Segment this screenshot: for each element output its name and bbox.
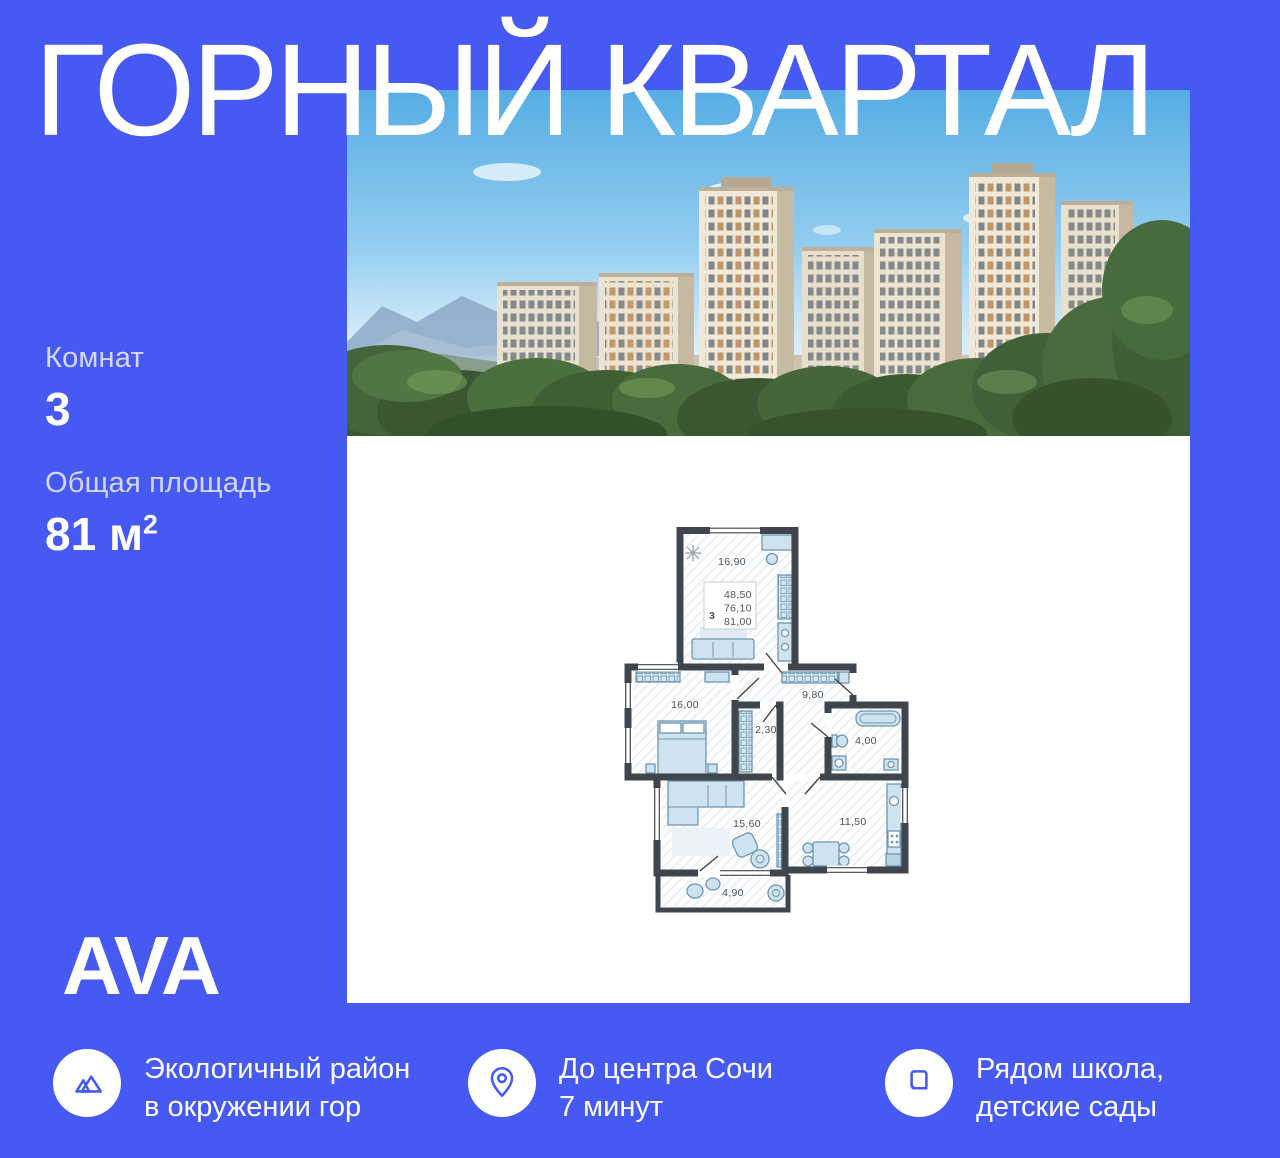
spec-area-number: 81 м xyxy=(45,508,143,560)
plan-summary-area-2: 76,10 xyxy=(724,603,752,615)
feature-ecology-line2: в окружении гор xyxy=(144,1088,410,1126)
spec-area: Общая площадь 81 м2 xyxy=(45,467,272,561)
feature-ecology: Экологичный район в окружении гор xyxy=(53,1049,410,1126)
spec-rooms: Комнат 3 xyxy=(45,342,144,436)
plan-summary-area-1: 48,50 xyxy=(724,589,752,601)
feature-location-line2: 7 минут xyxy=(559,1088,773,1126)
feature-ecology-text: Экологичный район в окружении гор xyxy=(144,1050,410,1126)
plan-summary-rooms: 3 xyxy=(709,610,715,622)
room-label-balcony: 4,90 xyxy=(722,887,744,899)
page-title: ГОРНЫЙ КВАРТАЛ xyxy=(34,24,1152,155)
feature-school-badge xyxy=(885,1049,953,1117)
feature-school-line1: Рядом школа, xyxy=(976,1050,1164,1088)
developer-logo: AVA xyxy=(62,924,219,1007)
feature-location: До центра Сочи 7 минут xyxy=(468,1049,773,1126)
floor-plan-panel: 3 48,50 76,10 81,00 16,90 16,00 2,30 9,8… xyxy=(347,436,1190,1003)
room-label-hallway: 9,80 xyxy=(802,689,824,701)
feature-location-line1: До центра Сочи xyxy=(559,1050,773,1088)
feature-ecology-badge xyxy=(53,1049,121,1117)
room-label-living-kitchen: 16,90 xyxy=(718,556,746,568)
spec-area-sup: 2 xyxy=(143,510,158,540)
feature-location-text: До центра Сочи 7 минут xyxy=(559,1050,773,1126)
mountains-icon xyxy=(68,1064,106,1102)
room-label-living-room: 15,60 xyxy=(733,818,761,830)
spec-area-label: Общая площадь xyxy=(45,467,272,500)
feature-school-text: Рядом школа, детские сады xyxy=(976,1050,1164,1126)
spec-rooms-label: Комнат xyxy=(45,342,144,375)
feature-school-line2: детские сады xyxy=(976,1088,1164,1126)
spec-area-value: 81 м2 xyxy=(45,507,272,561)
location-pin-icon xyxy=(483,1064,521,1102)
book-icon xyxy=(900,1064,938,1102)
floor-plan: 3 48,50 76,10 81,00 16,90 16,00 2,30 9,8… xyxy=(620,523,910,915)
feature-location-badge xyxy=(468,1049,536,1117)
chandelier-icon xyxy=(685,545,701,561)
room-label-wardrobe: 2,30 xyxy=(755,724,777,736)
listing-card: ГОРНЫЙ КВАРТАЛ Комнат 3 Общая площадь 81… xyxy=(0,0,1280,1158)
spec-rooms-value: 3 xyxy=(45,382,144,436)
feature-school: Рядом школа, детские сады xyxy=(885,1049,1164,1126)
plan-summary-area-3: 81,00 xyxy=(724,616,752,628)
room-label-bedroom: 16,00 xyxy=(671,699,699,711)
feature-ecology-line1: Экологичный район xyxy=(144,1050,410,1088)
plan-summary-box: 3 48,50 76,10 81,00 xyxy=(704,582,756,629)
room-label-bathroom: 4,00 xyxy=(855,735,877,747)
room-label-kitchen: 11,50 xyxy=(840,816,867,828)
